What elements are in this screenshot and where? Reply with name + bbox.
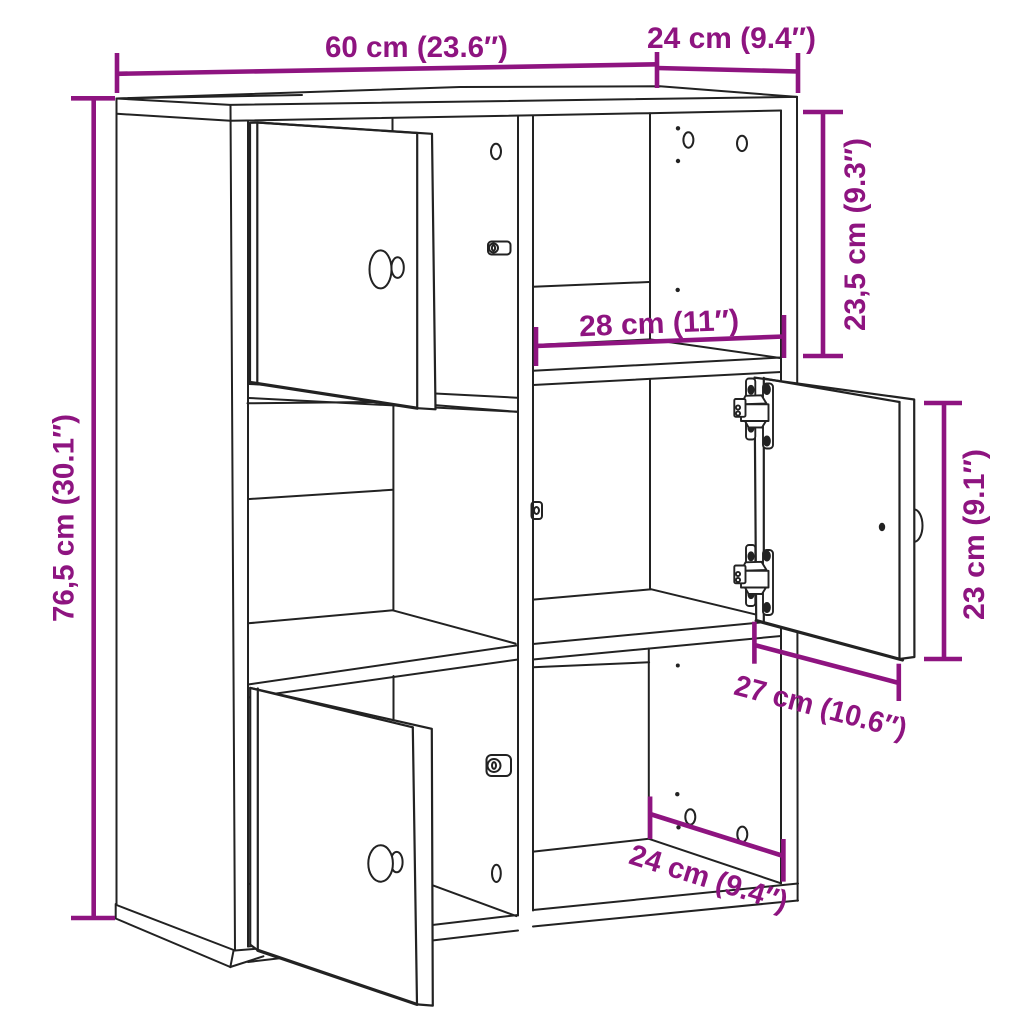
svg-text:23 cm (9.1″): 23 cm (9.1″) xyxy=(958,449,991,620)
svg-text:23,5 cm (9.3″): 23,5 cm (9.3″) xyxy=(839,138,872,331)
svg-text:24 cm (9.4″): 24 cm (9.4″) xyxy=(647,22,816,55)
svg-text:76,5 cm (30.1″): 76,5 cm (30.1″) xyxy=(48,414,81,622)
svg-text:60 cm (23.6″): 60 cm (23.6″) xyxy=(325,31,508,64)
svg-text:28 cm (11″): 28 cm (11″) xyxy=(578,304,739,343)
